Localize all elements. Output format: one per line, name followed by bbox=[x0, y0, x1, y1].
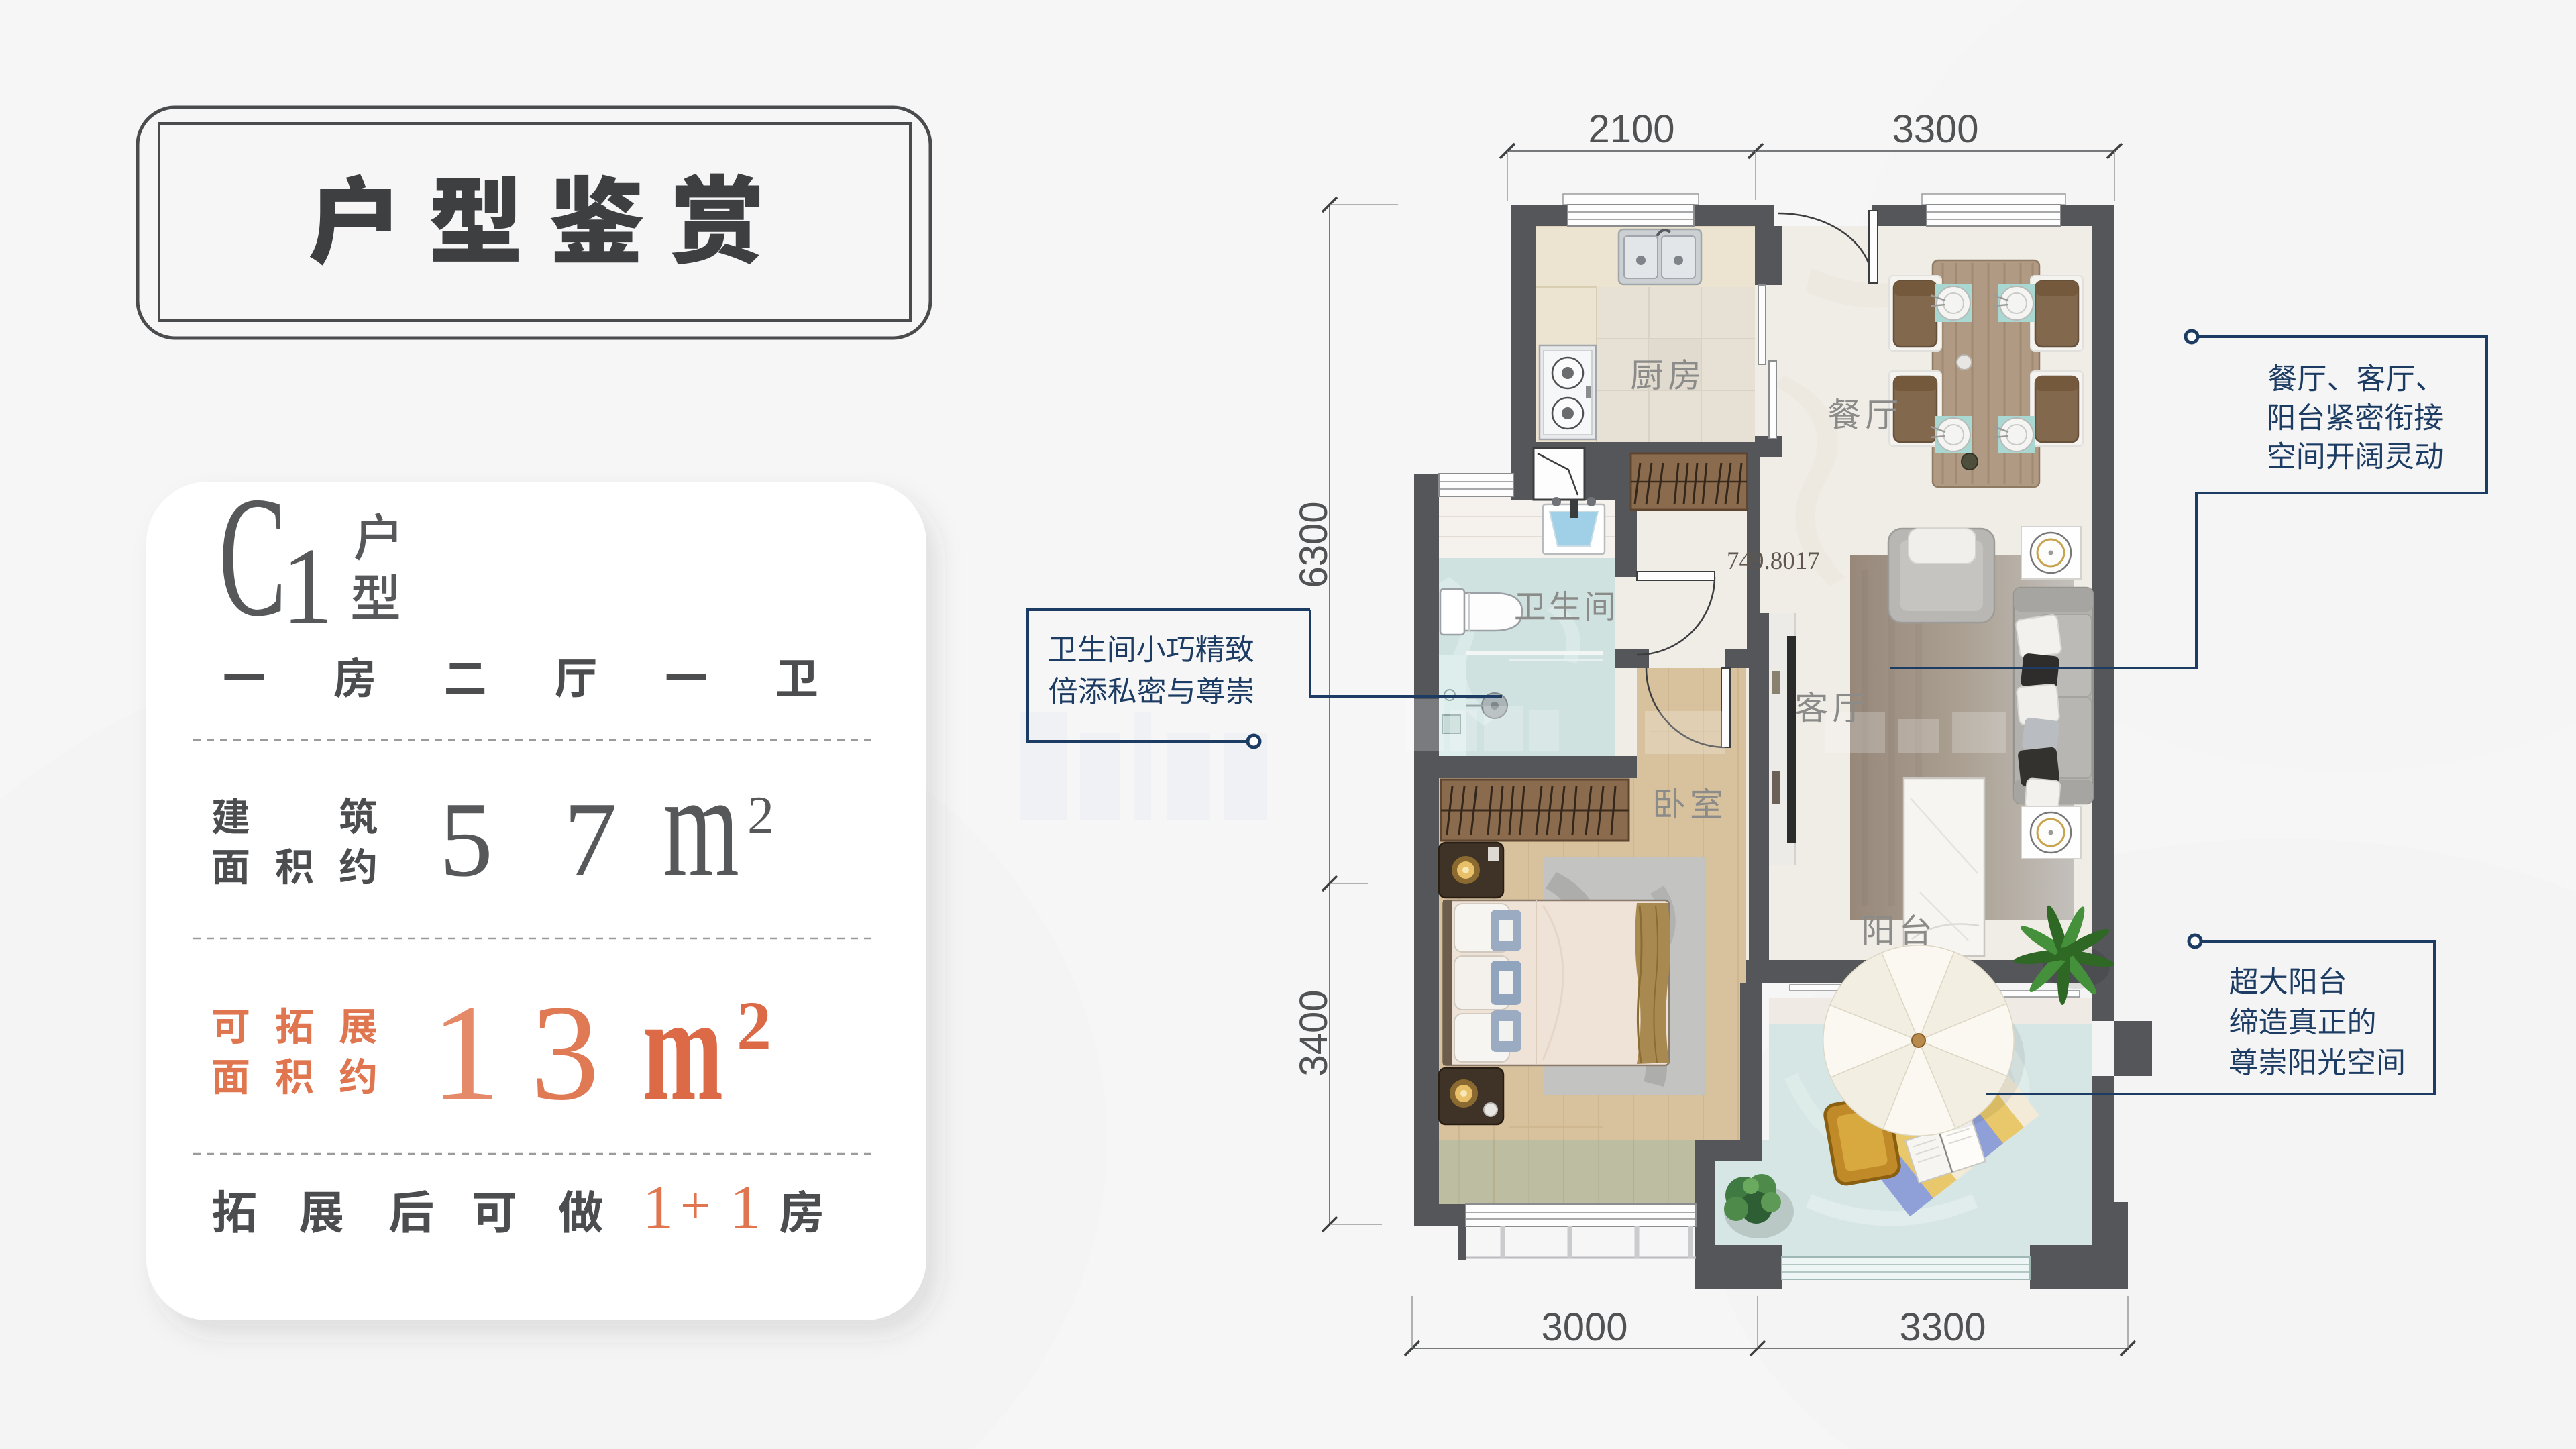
svg-text:3000: 3000 bbox=[1541, 1305, 1627, 1349]
svg-text:7: 7 bbox=[563, 780, 617, 899]
svg-text:3: 3 bbox=[531, 977, 600, 1129]
svg-text:5: 5 bbox=[439, 780, 493, 899]
svg-text:3300: 3300 bbox=[1892, 107, 1978, 151]
svg-text:1: 1 bbox=[282, 526, 333, 647]
svg-text:6300: 6300 bbox=[1292, 501, 1336, 588]
svg-text:3300: 3300 bbox=[1899, 1305, 1986, 1349]
svg-text:3400: 3400 bbox=[1292, 989, 1336, 1076]
svg-text:m: m bbox=[663, 743, 739, 908]
svg-text:2: 2 bbox=[737, 987, 771, 1065]
svg-text:C: C bbox=[219, 461, 286, 652]
svg-text:1: 1 bbox=[643, 1173, 674, 1241]
svg-text:1: 1 bbox=[431, 977, 500, 1129]
svg-text:+: + bbox=[680, 1177, 710, 1236]
svg-text:1: 1 bbox=[730, 1173, 761, 1241]
svg-text:m: m bbox=[643, 965, 723, 1132]
svg-text:2100: 2100 bbox=[1588, 107, 1674, 151]
svg-text:749.8017: 749.8017 bbox=[1727, 547, 1820, 575]
svg-text:2: 2 bbox=[747, 786, 774, 845]
